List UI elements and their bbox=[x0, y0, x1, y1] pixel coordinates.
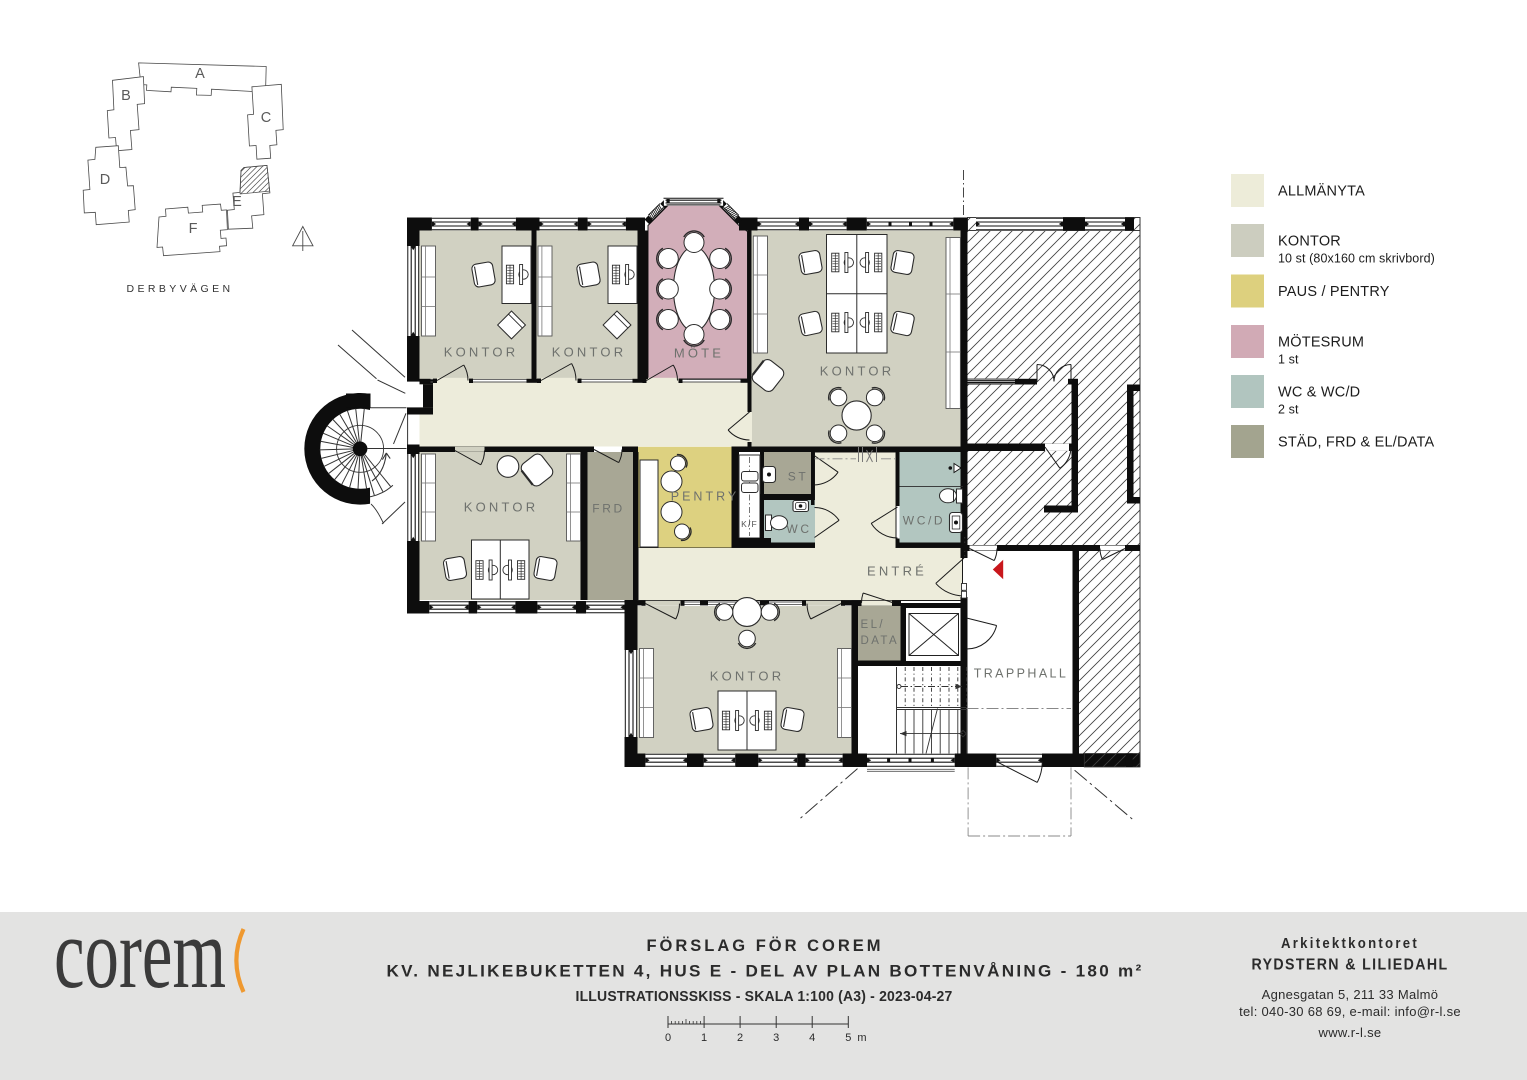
svg-text:ALLMÄNYTA: ALLMÄNYTA bbox=[1278, 183, 1365, 200]
svg-text:Arkitektkontoret: Arkitektkontoret bbox=[1281, 936, 1419, 952]
svg-text:3: 3 bbox=[773, 1032, 779, 1044]
svg-text:MÖTESRUM: MÖTESRUM bbox=[1278, 333, 1364, 351]
svg-text:Agnesgatan 5, 211 33 Malmö: Agnesgatan 5, 211 33 Malmö bbox=[1262, 987, 1439, 1002]
svg-text:5: 5 bbox=[845, 1032, 851, 1044]
svg-text:DERBYVÄGEN: DERBYVÄGEN bbox=[127, 283, 234, 295]
svg-text:WC/D: WC/D bbox=[903, 514, 945, 528]
svg-text:1: 1 bbox=[701, 1032, 707, 1044]
svg-text:EL/: EL/ bbox=[861, 619, 885, 631]
svg-text:ENTRÉ: ENTRÉ bbox=[867, 564, 927, 579]
svg-text:ST: ST bbox=[788, 470, 809, 484]
svg-text:B: B bbox=[121, 88, 131, 104]
svg-text:ILLUSTRATIONSSKISS - SKALA 1:1: ILLUSTRATIONSSKISS - SKALA 1:100 (A3) - … bbox=[576, 989, 953, 1005]
svg-text:E: E bbox=[232, 194, 242, 210]
svg-text:A: A bbox=[195, 66, 205, 82]
svg-text:PAUS / PENTRY: PAUS / PENTRY bbox=[1278, 284, 1390, 300]
svg-text:corem: corem bbox=[54, 897, 226, 1009]
svg-text:KV. NEJLIKEBUKETTEN 4, HUS E -: KV. NEJLIKEBUKETTEN 4, HUS E - DEL AV PL… bbox=[387, 962, 1144, 981]
svg-text:WC: WC bbox=[786, 522, 811, 536]
svg-text:MÖTE: MÖTE bbox=[674, 346, 724, 361]
svg-text:PENTRY: PENTRY bbox=[671, 490, 739, 504]
svg-text:1 st: 1 st bbox=[1278, 353, 1299, 367]
svg-text:tel: 040-30 68 69, e-mail: inf: tel: 040-30 68 69, e-mail: info@r-l.se bbox=[1239, 1004, 1461, 1019]
svg-text:DATA: DATA bbox=[861, 635, 900, 647]
svg-text:STÄD, FRD & EL/DATA: STÄD, FRD & EL/DATA bbox=[1278, 434, 1434, 451]
svg-text:10 st (80x160 cm skrivbord): 10 st (80x160 cm skrivbord) bbox=[1278, 252, 1435, 266]
svg-text:F: F bbox=[189, 221, 198, 237]
svg-text:KONTOR: KONTOR bbox=[464, 500, 539, 515]
svg-text:KONTOR: KONTOR bbox=[820, 364, 895, 379]
svg-text:C: C bbox=[261, 110, 271, 126]
svg-text:www.r-l.se: www.r-l.se bbox=[1318, 1025, 1382, 1040]
svg-text:RYDSTERN & LILIEDAHL: RYDSTERN & LILIEDAHL bbox=[1252, 957, 1449, 974]
svg-text:WC & WC/D: WC & WC/D bbox=[1278, 385, 1360, 401]
svg-text:KONTOR: KONTOR bbox=[444, 345, 519, 360]
svg-text:m: m bbox=[857, 1032, 866, 1044]
svg-text:2 st: 2 st bbox=[1278, 403, 1299, 417]
svg-text:TRAPPHALL: TRAPPHALL bbox=[974, 667, 1069, 681]
svg-text:KONTOR: KONTOR bbox=[710, 669, 785, 684]
svg-text:D: D bbox=[100, 172, 110, 188]
svg-text:FRD: FRD bbox=[592, 502, 624, 516]
svg-text:K/F: K/F bbox=[741, 519, 758, 529]
svg-text:FÖRSLAG FÖR COREM: FÖRSLAG FÖR COREM bbox=[646, 936, 883, 955]
svg-text:2: 2 bbox=[737, 1032, 743, 1044]
svg-text:4: 4 bbox=[809, 1032, 815, 1044]
svg-text:KONTOR: KONTOR bbox=[552, 345, 627, 360]
svg-text:0: 0 bbox=[665, 1032, 671, 1044]
svg-text:KONTOR: KONTOR bbox=[1278, 234, 1341, 250]
